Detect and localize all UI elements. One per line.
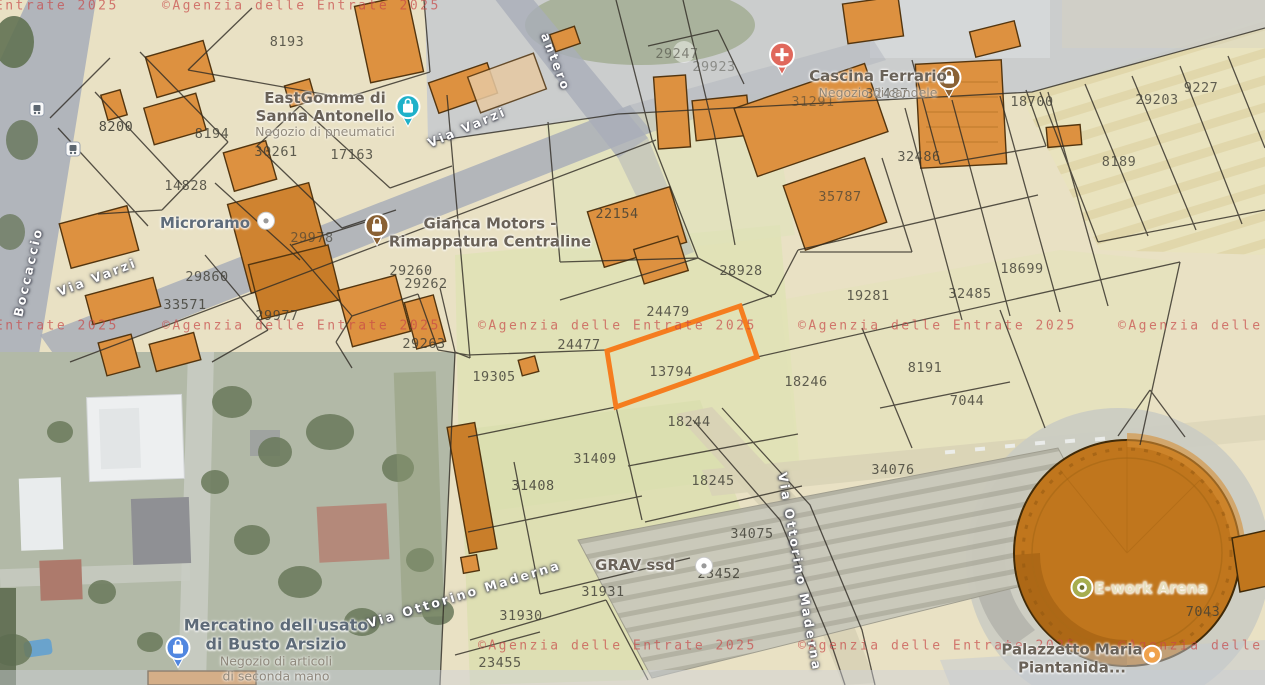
poi-label-line: Rimappatura Centraline bbox=[389, 233, 591, 251]
poi-label-line: Cascina Ferrario bbox=[809, 68, 947, 86]
street-label-via-varzi: Via Varzi bbox=[425, 104, 508, 151]
eastgomme-pin-icon[interactable] bbox=[393, 92, 423, 129]
poi-label-line: di Busto Arsizio bbox=[184, 635, 369, 654]
parcel-number-22154: 22154 bbox=[595, 206, 638, 222]
copyright-watermark: ©Agenzia delle Entrate 2025 bbox=[798, 319, 1077, 334]
parcel-number-34075: 34075 bbox=[730, 526, 773, 542]
parcel-number-31930: 31930 bbox=[499, 608, 542, 624]
parcel-number-34076: 34076 bbox=[871, 462, 914, 478]
parcel-number-13794: 13794 bbox=[649, 364, 692, 380]
parcel-number-23455: 23455 bbox=[478, 655, 521, 671]
poi-label-line: Piantanida... bbox=[1001, 659, 1142, 677]
poi-label-line: di seconda mano bbox=[184, 669, 369, 684]
parcel-number-29978: 29978 bbox=[290, 230, 333, 246]
parcel-number-18699: 18699 bbox=[1000, 261, 1043, 277]
parcel-number-29203: 29203 bbox=[1135, 92, 1178, 108]
copyright-watermark: ©Agenzia delle Entrate 2025 bbox=[0, 0, 119, 14]
parcel-number-19305: 19305 bbox=[472, 369, 515, 385]
parcel-number-29262: 29262 bbox=[404, 276, 447, 292]
parcel-number-14828: 14828 bbox=[164, 178, 207, 194]
parcel-number-18245: 18245 bbox=[691, 473, 734, 489]
parcel-number-31931: 31931 bbox=[581, 584, 624, 600]
arena-pin-icon[interactable] bbox=[1067, 573, 1097, 603]
parcel-number-29923: 29923 bbox=[692, 59, 735, 75]
parcel-number-30261: 30261 bbox=[254, 144, 297, 160]
parcel-number-33571: 33571 bbox=[163, 297, 206, 313]
poi-label-line: EastGomme di bbox=[255, 90, 395, 108]
parcel-number-32485: 32485 bbox=[948, 286, 991, 302]
parcel-number-29860: 29860 bbox=[185, 269, 228, 285]
parcel-number-9227: 9227 bbox=[1184, 80, 1219, 96]
poi-label-line: Negozio di pneumatici bbox=[255, 125, 395, 140]
poi-label-line: Microramo bbox=[160, 215, 250, 233]
parcel-number-7043: 7043 bbox=[1186, 604, 1221, 620]
street-label-boccaccio: Boccaccio bbox=[10, 226, 45, 319]
parcel-number-31409: 31409 bbox=[573, 451, 616, 467]
copyright-watermark: ©Agenzia delle Entrate 2025 bbox=[478, 639, 757, 654]
copyright-watermark: ©Agenzia delle Entrate 2025 bbox=[162, 319, 441, 334]
parcel-number-24479: 24479 bbox=[646, 304, 689, 320]
street-label-antero: antero bbox=[538, 31, 574, 94]
grav-pin-icon[interactable] bbox=[692, 554, 716, 578]
poi-label-line: Negozio di candele bbox=[809, 85, 947, 100]
poi-label-microramo[interactable]: Microramo bbox=[160, 215, 250, 233]
poi-label-cascina[interactable]: Cascina FerrarioNegozio di candele bbox=[809, 68, 947, 100]
parcel-number-8194: 8194 bbox=[195, 126, 230, 142]
parcel-number-35787: 35787 bbox=[818, 189, 861, 205]
poi-label-line: Palazzetto Maria bbox=[1001, 641, 1142, 659]
street-label-via-varzi: Via Varzi bbox=[55, 255, 139, 299]
microramo-pin-icon[interactable] bbox=[254, 209, 278, 233]
poi-label-palazzetto[interactable]: Palazzetto MariaPiantanida... bbox=[1001, 641, 1142, 676]
parcel-number-28928: 28928 bbox=[719, 263, 762, 279]
poi-label-line: GRAV ssd bbox=[595, 557, 675, 575]
poi-label-line: Gianca Motors - bbox=[389, 215, 591, 233]
parcel-number-7044: 7044 bbox=[950, 393, 985, 409]
copyright-watermark: ©Agenzia delle Entrate 2025 bbox=[0, 319, 119, 334]
parcel-number-31408: 31408 bbox=[511, 478, 554, 494]
gianca-pin-icon[interactable] bbox=[362, 211, 392, 248]
parcel-number-17163: 17163 bbox=[330, 147, 373, 163]
parcel-number-8200: 8200 bbox=[99, 119, 134, 135]
parcel-number-18244: 18244 bbox=[667, 414, 710, 430]
map-labels-layer: ©Agenzia delle Entrate 2025©Agenzia dell… bbox=[0, 0, 1265, 685]
parcel-number-32486: 32486 bbox=[897, 149, 940, 165]
parcel-number-18700: 18700 bbox=[1010, 94, 1053, 110]
health-pin-icon[interactable] bbox=[767, 40, 797, 77]
poi-label-grav[interactable]: GRAV ssd bbox=[595, 557, 675, 575]
copyright-watermark: ©Agenzia delle Entrate 2025 bbox=[162, 0, 441, 14]
copyright-watermark: ©Agenzia delle Entrate 2025 bbox=[478, 319, 757, 334]
parcel-number-24477: 24477 bbox=[557, 337, 600, 353]
parcel-number-18246: 18246 bbox=[784, 374, 827, 390]
parcel-number-19281: 19281 bbox=[846, 288, 889, 304]
poi-label-gianca[interactable]: Gianca Motors -Rimappatura Centraline bbox=[389, 215, 591, 250]
parcel-number-29977: 29977 bbox=[255, 308, 298, 324]
parcel-number-8189: 8189 bbox=[1102, 154, 1137, 170]
poi-label-mercatino[interactable]: Mercatino dell'usatodi Busto ArsizioNego… bbox=[184, 616, 369, 683]
poi-label-eastgomme[interactable]: EastGomme diSanna AntonelloNegozio di pn… bbox=[255, 90, 395, 140]
parcel-number-8191: 8191 bbox=[908, 360, 943, 376]
parcel-number-8193: 8193 bbox=[270, 34, 305, 50]
poi-label-line: Sanna Antonello bbox=[255, 108, 395, 126]
poi-label-arena[interactable]: E-work Arena bbox=[1094, 580, 1207, 598]
map-canvas[interactable]: ©Agenzia delle Entrate 2025©Agenzia dell… bbox=[0, 0, 1265, 685]
poi-label-line: E-work Arena bbox=[1094, 580, 1207, 598]
poi-label-line: Mercatino dell'usato bbox=[184, 616, 369, 635]
parcel-number-29263: 29263 bbox=[402, 336, 445, 352]
poi-label-line: Negozio di articoli bbox=[184, 654, 369, 669]
palazzetto-pin-icon[interactable] bbox=[1139, 642, 1165, 668]
copyright-watermark: ©Agenzia delle Entrate 2025 bbox=[1118, 319, 1265, 334]
